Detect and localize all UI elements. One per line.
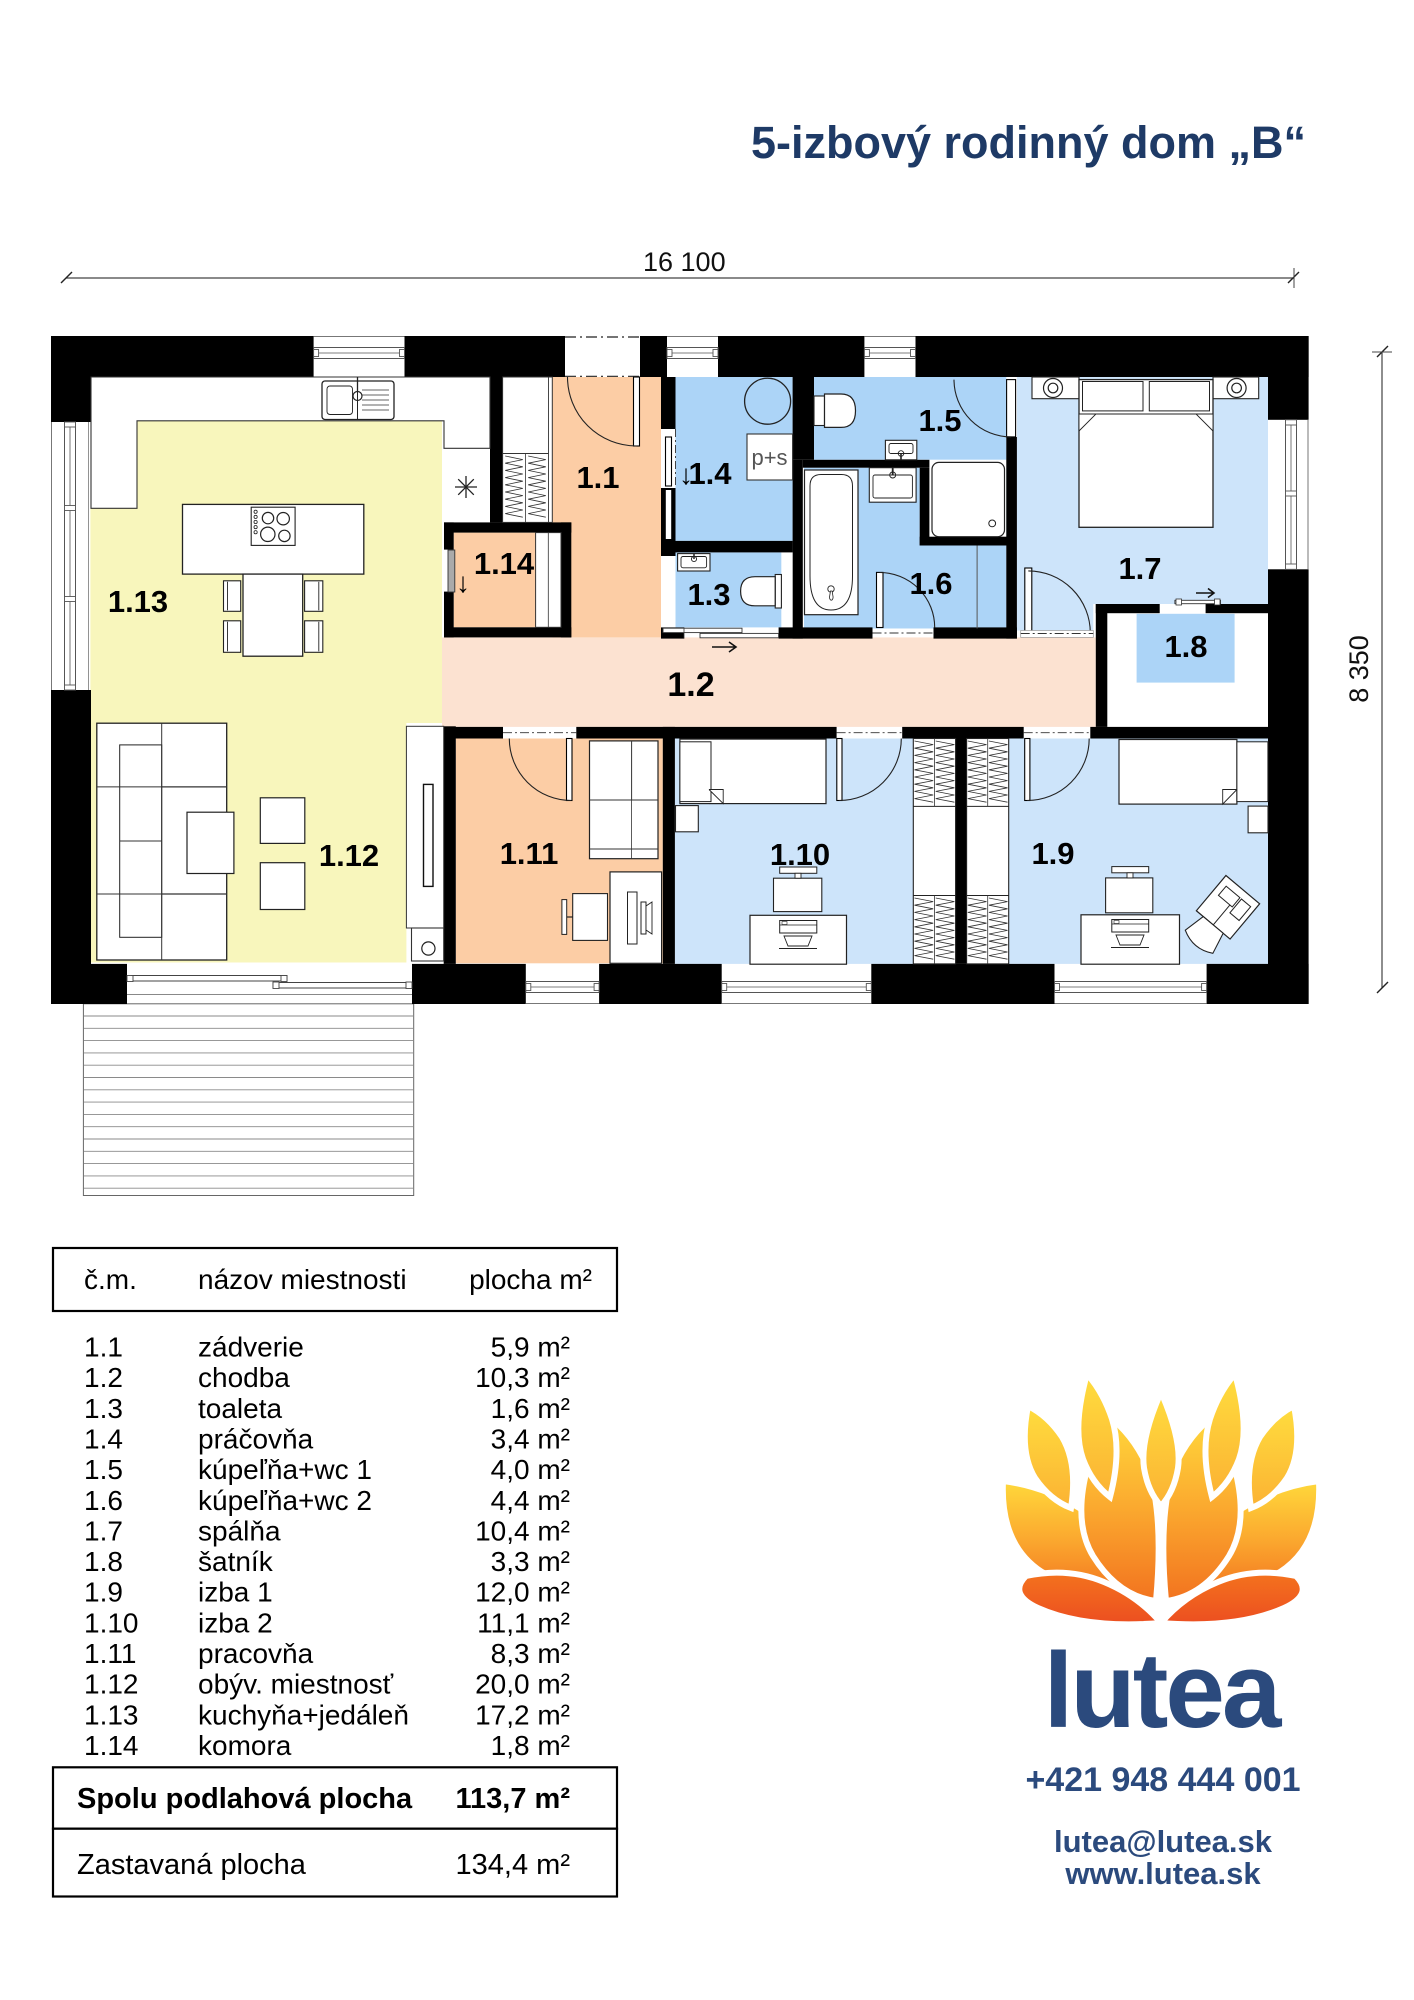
svg-text:4,4 m²: 4,4 m² (491, 1485, 570, 1516)
svg-text:Spolu podlahová plocha: Spolu podlahová plocha (77, 1783, 413, 1815)
svg-text:1.12: 1.12 (84, 1669, 139, 1700)
svg-text:4,0 m²: 4,0 m² (491, 1454, 570, 1485)
svg-text:1.7: 1.7 (84, 1515, 123, 1546)
svg-text:1,6 m²: 1,6 m² (491, 1393, 570, 1424)
svg-text:1.9: 1.9 (1031, 836, 1074, 871)
svg-text:1.6: 1.6 (84, 1485, 123, 1516)
svg-text:5-izbový rodinný dom „B“: 5-izbový rodinný dom „B“ (751, 117, 1306, 168)
svg-text:16 100: 16 100 (643, 247, 726, 277)
svg-text:práčovňa: práčovňa (198, 1424, 314, 1455)
svg-text:lutea: lutea (1044, 1630, 1283, 1750)
svg-text:p+s: p+s (751, 445, 787, 470)
svg-text:1.4: 1.4 (688, 456, 732, 491)
svg-text:11,1 m²: 11,1 m² (477, 1607, 570, 1638)
svg-text:kúpeľňa+wc 2: kúpeľňa+wc 2 (198, 1485, 372, 1516)
svg-text:+421 948 444 001: +421 948 444 001 (1025, 1761, 1300, 1799)
svg-text:1.11: 1.11 (84, 1638, 136, 1669)
svg-text:Zastavaná plocha: Zastavaná plocha (77, 1849, 307, 1881)
svg-text:12,0 m²: 12,0 m² (475, 1577, 570, 1608)
svg-text:17,2 m²: 17,2 m² (475, 1699, 570, 1730)
svg-text:pracovňa: pracovňa (198, 1638, 314, 1669)
svg-text:zádverie: zádverie (198, 1332, 304, 1363)
svg-text:1.3: 1.3 (687, 577, 730, 612)
svg-text:10,4 m²: 10,4 m² (475, 1515, 570, 1546)
svg-text:1.13: 1.13 (84, 1699, 139, 1730)
svg-text:↓: ↓ (679, 459, 693, 490)
svg-text:3,3 m²: 3,3 m² (491, 1546, 570, 1577)
svg-text:chodba: chodba (198, 1362, 290, 1393)
svg-text:plocha m²: plocha m² (469, 1264, 592, 1295)
svg-text:1.2: 1.2 (667, 666, 714, 704)
svg-text:obýv. miestnosť: obýv. miestnosť (198, 1669, 394, 1700)
svg-text:1.5: 1.5 (84, 1454, 123, 1485)
svg-text:134,4 m²: 134,4 m² (456, 1849, 571, 1881)
svg-text:1.11: 1.11 (500, 836, 559, 871)
svg-text:1,8 m²: 1,8 m² (491, 1730, 570, 1761)
svg-text:10,3 m²: 10,3 m² (475, 1362, 570, 1393)
svg-text:1.10: 1.10 (84, 1607, 139, 1638)
svg-text:toaleta: toaleta (198, 1393, 282, 1424)
svg-text:1.12: 1.12 (319, 838, 379, 873)
svg-text:8 350: 8 350 (1344, 635, 1374, 703)
svg-text:spálňa: spálňa (198, 1515, 281, 1546)
svg-text:113,7 m²: 113,7 m² (456, 1783, 571, 1815)
svg-text:šatník: šatník (198, 1546, 274, 1577)
svg-text:↓: ↓ (456, 567, 470, 598)
svg-text:1.8: 1.8 (84, 1546, 123, 1577)
svg-text:č.m.: č.m. (84, 1264, 137, 1295)
svg-text:1.10: 1.10 (770, 837, 830, 872)
svg-text:1.1: 1.1 (576, 460, 619, 495)
svg-text:20,0 m²: 20,0 m² (475, 1669, 570, 1700)
svg-text:1.8: 1.8 (1164, 629, 1207, 664)
svg-text:1.3: 1.3 (84, 1393, 123, 1424)
svg-text:kúpeľňa+wc 1: kúpeľňa+wc 1 (198, 1454, 372, 1485)
svg-text:www.lutea.sk: www.lutea.sk (1064, 1856, 1261, 1891)
svg-text:8,3 m²: 8,3 m² (491, 1638, 570, 1669)
svg-text:izba 2: izba 2 (198, 1607, 273, 1638)
svg-text:5,9 m²: 5,9 m² (491, 1332, 570, 1363)
svg-text:názov miestnosti: názov miestnosti (198, 1264, 407, 1295)
svg-text:1.7: 1.7 (1118, 551, 1161, 586)
svg-text:1.1: 1.1 (84, 1332, 123, 1363)
svg-text:1.4: 1.4 (84, 1424, 123, 1455)
svg-text:lutea@lutea.sk: lutea@lutea.sk (1054, 1824, 1273, 1859)
svg-text:1.9: 1.9 (84, 1577, 123, 1608)
svg-text:1.13: 1.13 (108, 584, 168, 619)
svg-text:1.14: 1.14 (474, 546, 535, 581)
svg-text:3,4 m²: 3,4 m² (491, 1424, 570, 1455)
svg-text:kuchyňa+jedáleň: kuchyňa+jedáleň (198, 1699, 409, 1730)
svg-text:1.14: 1.14 (84, 1730, 139, 1761)
svg-text:komora: komora (198, 1730, 292, 1761)
svg-text:izba 1: izba 1 (198, 1577, 273, 1608)
svg-text:1.5: 1.5 (918, 403, 961, 438)
svg-text:1.2: 1.2 (84, 1362, 123, 1393)
svg-text:1.6: 1.6 (909, 566, 952, 601)
